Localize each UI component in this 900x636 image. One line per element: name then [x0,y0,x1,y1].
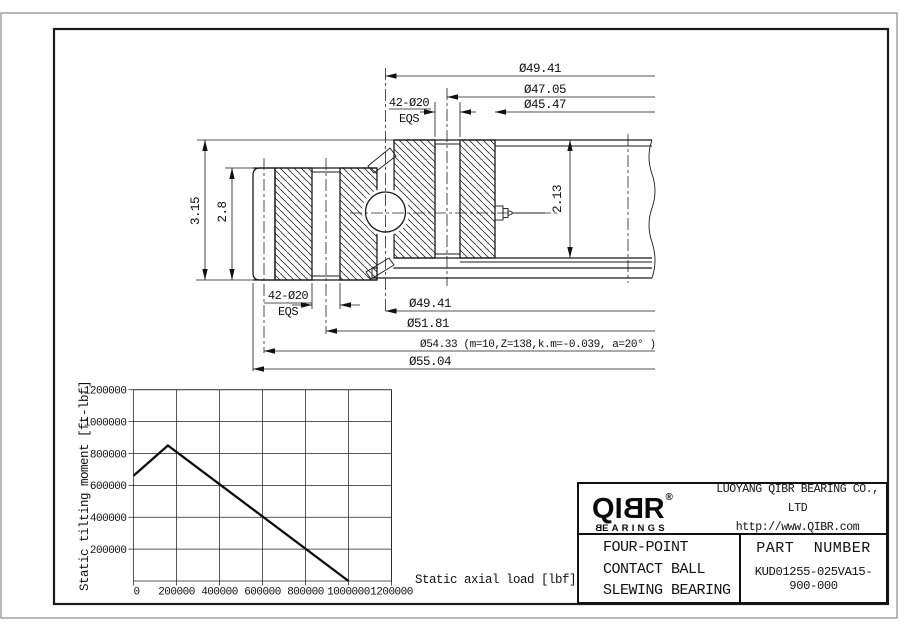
tick-label-y: 600000 [90,481,127,493]
product-description: FOUR-POINT CONTACT BALL SLEWING BEARING [579,535,741,602]
dim-height-outer-ring: 2.8 [216,201,230,222]
bearing-cross-section [253,68,655,353]
break-line [649,140,655,278]
product-line: CONTACT BALL [603,559,739,581]
chart-y-axis-title: Static tilting moment [ft-lbf] [78,381,92,591]
title-block: QIBR® BEARINGS LUOYANG QIBR BEARING CO.,… [577,482,888,604]
registered-trademark-icon: ® [666,492,673,503]
dim-height-inner-ring: 2.13 [551,185,565,213]
tick-label-x: 600000 [244,587,281,599]
tick-label-x: 1200000 [370,587,413,599]
dim-raceway-bottom: Ø49.41 [409,297,451,311]
inner-ring-section-right [460,140,495,258]
chart-curve [134,445,349,581]
load-capacity-chart: 2000004000006000008000001000000120000002… [78,381,576,599]
engineering-drawing-page: Ø49.41 Ø47.05 Ø45.47 42-Ø20 EQS 3.15 2.8… [0,0,900,636]
tick-label-x: 1000000 [327,587,370,599]
dim-bolt-circle-bottom: Ø51.81 [407,317,449,331]
mirrored-b-glyph: B [592,523,602,534]
tick-label-y: 800000 [90,449,127,461]
dim-raceway-top: Ø49.41 [519,62,561,76]
dim-gear-pitch: Ø54.33 (m=10,Z=138,k.m=-0.039, a=20° ) [420,339,656,351]
tick-label-y: 400000 [90,513,127,525]
bolt-bottom-note: EQS [278,305,298,319]
bolt-top-note: EQS [399,112,419,126]
qibr-logo: QIBR® BEARINGS [579,484,709,534]
tick-label-x: 400000 [201,587,238,599]
title-block-header: QIBR® BEARINGS LUOYANG QIBR BEARING CO.,… [579,484,886,535]
dim-height-total: 3.15 [189,197,203,225]
outer-ring-section-left [275,168,312,280]
dim-bolt-circle-top: Ø47.05 [524,83,566,97]
bolt-top-qty: 42-Ø20 [389,96,430,110]
chart-plot-area: 2000004000006000008000001000000120000002… [84,386,413,599]
mirrored-b-glyph: B [623,495,644,523]
dim-bore-top: Ø45.47 [524,98,566,112]
tick-label-x: 800000 [287,587,324,599]
company-info: LUOYANG QIBR BEARING CO., LTD http://www… [709,480,886,537]
part-number-cell: PART NUMBER KUD01255-025VA15-900-000 [741,535,886,602]
brand-logo-subtext: BEARINGS [592,523,709,534]
tick-label-y: 200000 [90,545,127,557]
chart-x-axis-title: Static axial load [lbf] [415,573,576,587]
bolt-bottom-qty: 42-Ø20 [268,289,309,303]
part-number-value: KUD01255-025VA15-900-000 [741,565,886,593]
part-number-label: PART NUMBER [741,540,886,557]
tick-label-x: 0 [133,587,139,599]
brand-logo-text: QIBR® [592,484,709,523]
dim-outer-diameter: Ø55.04 [409,355,451,369]
company-name: LUOYANG QIBR BEARING CO., LTD [709,480,886,518]
title-block-body: FOUR-POINT CONTACT BALL SLEWING BEARING … [579,535,886,602]
product-line: FOUR-POINT [603,537,739,559]
tick-label-x: 200000 [158,587,195,599]
product-line: SLEWING BEARING [603,580,739,602]
